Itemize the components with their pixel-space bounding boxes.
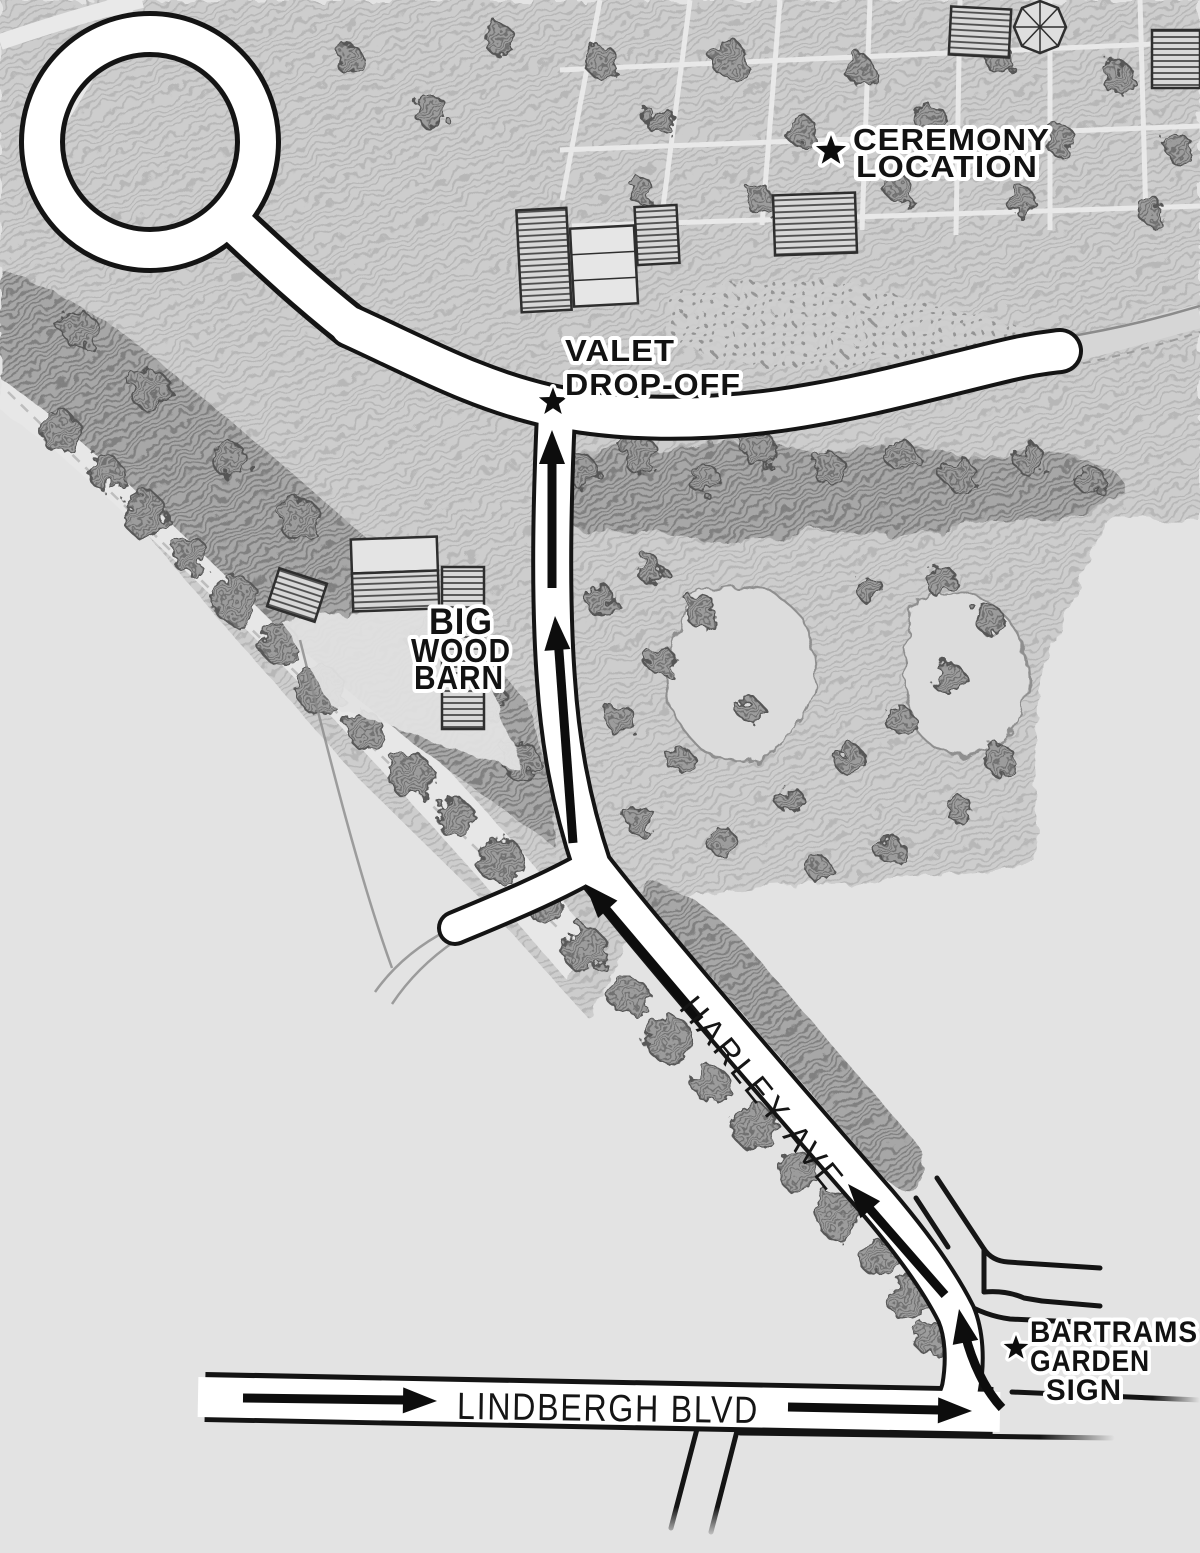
- ne-barn: [773, 193, 857, 256]
- ceremony-location-label: CEREMONY LOCATION: [853, 122, 1050, 184]
- valet-label-line1: VALET: [565, 333, 675, 368]
- main-barn-3: [635, 205, 680, 265]
- lindbergh-blvd-street-name: LINDBERGH BLVD: [457, 1386, 760, 1432]
- garden-building: [949, 6, 1011, 57]
- main-barn-2: [570, 225, 638, 306]
- ceremony-label-line2: LOCATION: [856, 149, 1038, 184]
- valet-label-line2: DROP-OFF: [565, 367, 741, 402]
- bartrams-label-line3: SIGN: [1046, 1374, 1122, 1407]
- big-wood-barn-building: [351, 537, 439, 612]
- directions-map: CEREMONY LOCATION VALET DROP-OFF BIG WOO…: [0, 0, 1200, 1553]
- edge-building: [1152, 30, 1200, 88]
- pavilion-octagon: [1014, 1, 1066, 53]
- main-barn-1: [516, 208, 571, 312]
- barn-label-line3: BARN: [414, 659, 504, 696]
